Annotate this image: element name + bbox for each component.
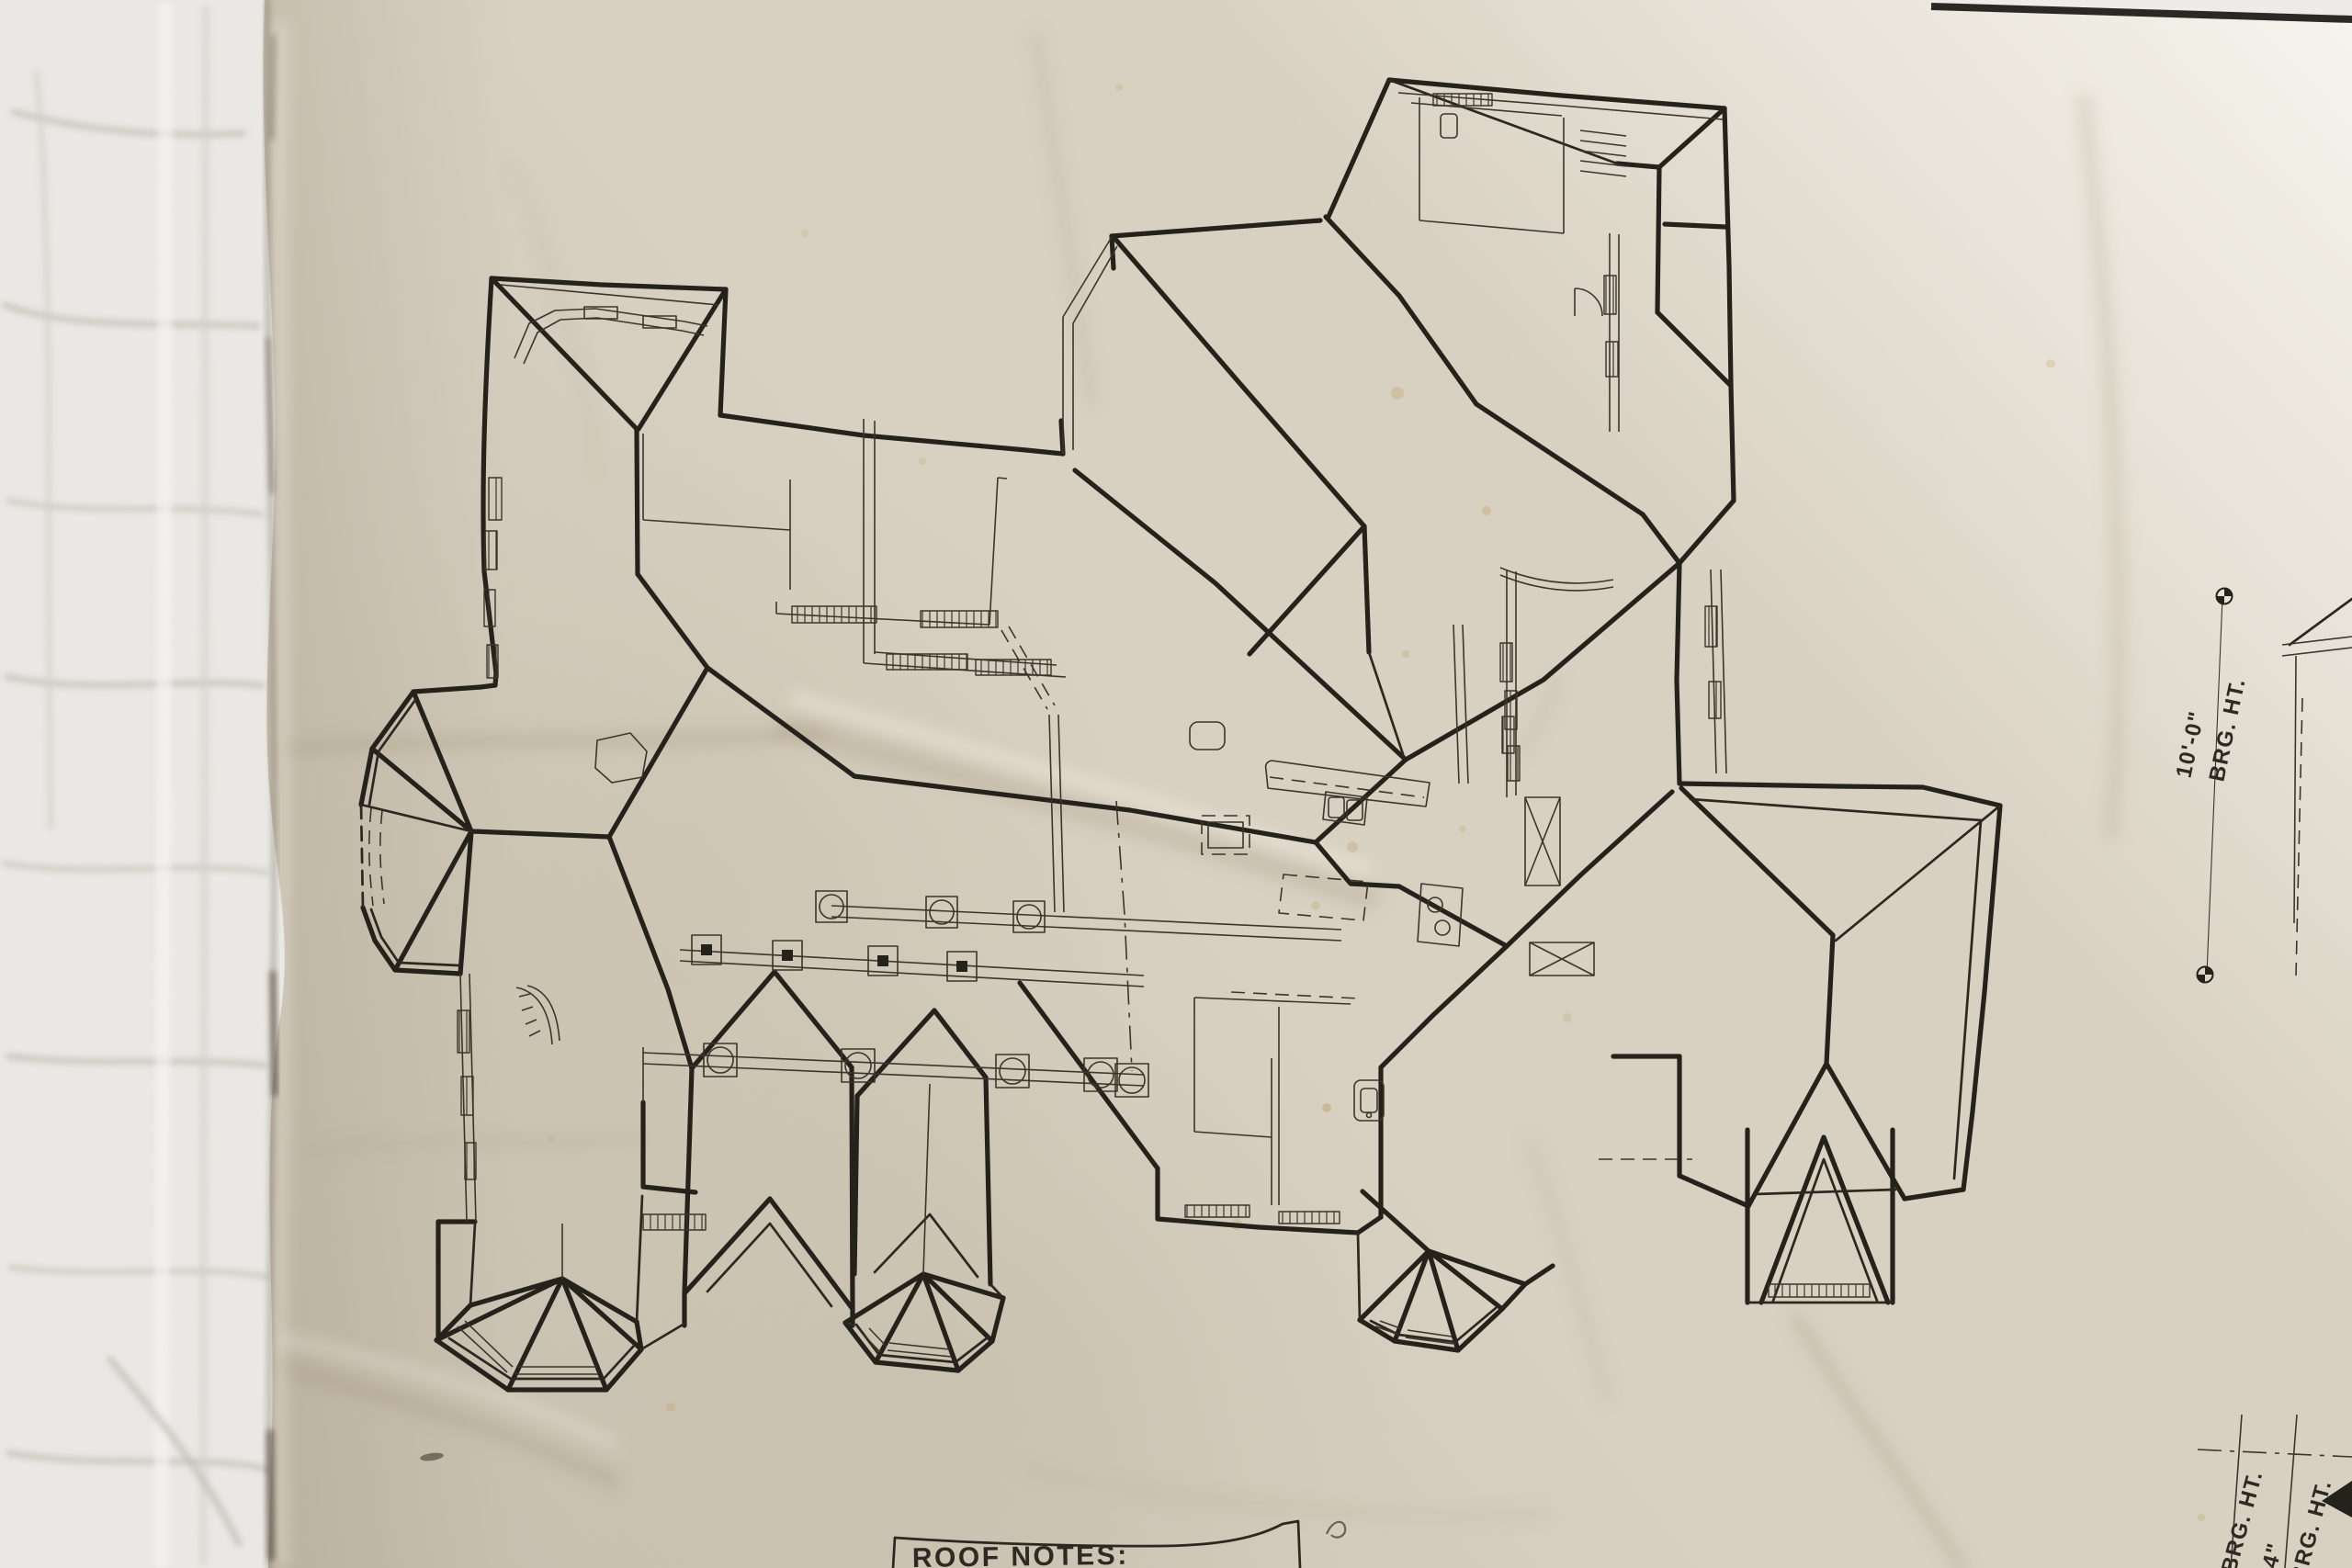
drawing-line	[1502, 716, 1514, 753]
roof-plan-canvas: 10'-0" BRG. HT. BRG. HT. 11'-4" BRG. HT.…	[0, 0, 2352, 1568]
drawing-line	[782, 950, 793, 961]
drawing-line	[485, 531, 497, 570]
paper-background	[0, 0, 2352, 1568]
drawing-line	[1500, 643, 1512, 682]
drawing-line	[792, 606, 876, 623]
drawing-line	[278, 28, 282, 1562]
drawing-line	[1459, 825, 1466, 832]
drawing-line	[666, 1403, 675, 1412]
underlying-sheet	[0, 0, 285, 1568]
drawing-line	[854, 1096, 857, 1274]
drawing-line	[484, 590, 495, 626]
drawing-line	[976, 660, 1051, 675]
dimension-marker-icon	[2217, 589, 2233, 604]
drawing-line	[1402, 650, 1409, 658]
drawing-line	[637, 429, 638, 574]
drawing-line	[1311, 901, 1320, 910]
drawing-line	[1705, 606, 1717, 647]
drawing-line	[0, 0, 285, 1568]
drawing-line	[643, 1214, 706, 1230]
drawing-line	[270, 1433, 271, 1557]
drawing-line	[1606, 342, 1618, 377]
drawing-line	[273, 974, 275, 1093]
drawing-line	[877, 955, 888, 966]
drawing-line	[1677, 563, 1679, 784]
drawing-line	[202, 9, 206, 1562]
drawing-line	[1322, 1103, 1331, 1112]
drawing-line	[1657, 167, 1659, 312]
dimension-marker-icon	[2198, 967, 2213, 983]
drawing-line	[1115, 84, 1123, 91]
drawing-line	[1604, 276, 1616, 314]
drawing-line	[2198, 1514, 2205, 1521]
drawing-line	[0, 0, 2352, 1568]
drawing-line	[1665, 224, 1725, 227]
drawing-line	[921, 611, 998, 627]
drawing-line	[272, 37, 274, 138]
drawing-line	[465, 1143, 476, 1179]
notes-title: ROOF NOTES:	[912, 1540, 1129, 1568]
drawing-line	[1433, 94, 1492, 106]
drawing-line	[1482, 506, 1491, 515]
drawing-line	[161, 9, 165, 1562]
drawing-line	[887, 654, 967, 670]
drawing-line	[489, 478, 502, 520]
drawing-line	[1563, 1013, 1572, 1022]
drawing-line	[1769, 1284, 1870, 1297]
drawing-line	[919, 457, 926, 465]
drawing-line	[1185, 1205, 1249, 1217]
drawing-line	[956, 961, 967, 972]
drawing-line	[268, 340, 272, 491]
drawing-line	[548, 1136, 554, 1142]
drawing-line	[701, 944, 712, 955]
drawing-line	[487, 645, 498, 678]
drawing-line	[461, 1077, 473, 1115]
drawing-line	[1709, 682, 1721, 718]
blueprint-photo: 10'-0" BRG. HT. BRG. HT. 11'-4" BRG. HT.…	[0, 0, 2352, 1568]
drawing-line	[1391, 387, 1404, 400]
drawing-line	[2046, 359, 2055, 368]
drawing-line	[1347, 841, 1358, 852]
drawing-line	[1279, 1212, 1340, 1224]
drawing-line	[1731, 386, 1734, 501]
drawing-line	[458, 1010, 469, 1053]
drawing-line	[801, 230, 808, 237]
